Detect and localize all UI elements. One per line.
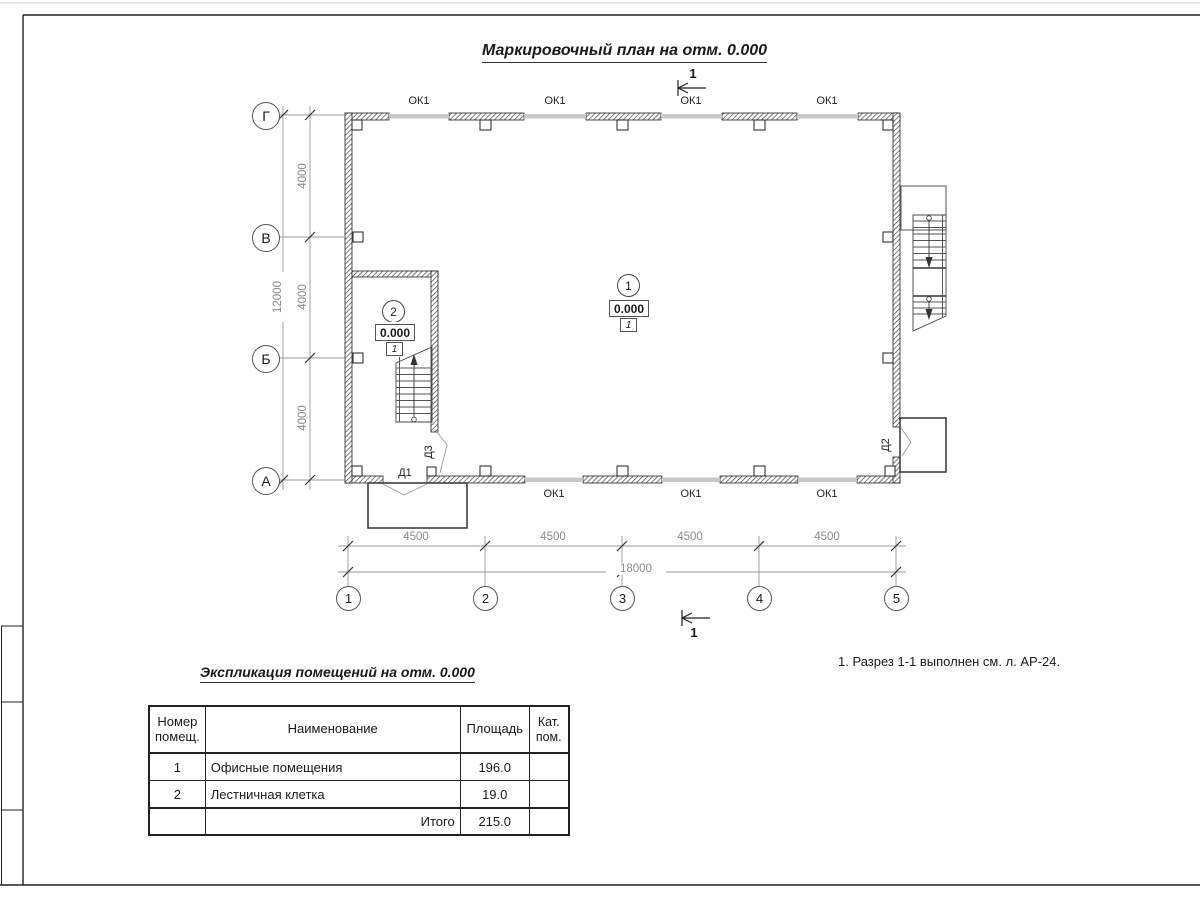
window-label: ОК1: [807, 488, 847, 500]
cell-empty: [149, 808, 205, 835]
dimension-text: 4500: [523, 531, 583, 543]
dimension-text-total: 12000: [272, 272, 284, 322]
door-label-d3: Д3: [423, 432, 435, 472]
table-row: 2 Лестничная клетка 19.0: [149, 781, 569, 809]
external-stair: [901, 186, 946, 331]
window-label: ОК1: [671, 95, 711, 107]
room-number-badge: 2: [382, 300, 405, 323]
axis-bubble-row: Б: [252, 345, 280, 373]
cell-number: 1: [149, 753, 205, 781]
cell-area: 196.0: [460, 753, 529, 781]
header-cat: Кат. пом.: [529, 706, 569, 753]
window-label: ОК1: [807, 95, 847, 107]
total-label: Итого: [205, 808, 460, 835]
header-name: Наименование: [205, 706, 460, 753]
room-elevation: 0.000: [375, 324, 415, 341]
drawing-sheet: Маркировочный план на отм. 0.000 Эксплик…: [0, 0, 1200, 900]
explication-title: Экспликация помещений на отм. 0.000: [200, 664, 475, 683]
header-number: Номер помещ.: [149, 706, 205, 753]
porches: [368, 418, 946, 528]
room-number-badge: 1: [617, 274, 640, 297]
cell-name: Офисные помещения: [205, 753, 460, 781]
section-number-top: 1: [683, 66, 703, 81]
axis-bubble-col: 3: [610, 586, 635, 611]
axis-bubble-col: 4: [747, 586, 772, 611]
axis-bubble-row: Г: [252, 102, 280, 130]
window-label: ОК1: [399, 95, 439, 107]
dimension-text-total: 18000: [606, 563, 666, 575]
axis-bubble-col: 2: [473, 586, 498, 611]
axis-bubble-col: 1: [336, 586, 361, 611]
cell-number: 2: [149, 781, 205, 809]
dimension-lines: [278, 106, 906, 587]
cell-area: 19.0: [460, 781, 529, 809]
door-leaves: [383, 428, 911, 495]
plan-title: Маркировочный план на отм. 0.000: [482, 42, 767, 63]
door-label-d2: Д2: [880, 425, 892, 465]
header-area: Площадь: [460, 706, 529, 753]
explication-table: Номер помещ. Наименование Площадь Кат. п…: [148, 705, 570, 836]
table-total-row: Итого 215.0: [149, 808, 569, 835]
stairwell-stair: [396, 347, 432, 422]
cell-name: Лестничная клетка: [205, 781, 460, 809]
window-label: ОК1: [535, 95, 575, 107]
dimension-text: 4000: [297, 156, 309, 196]
dimension-text: 4000: [297, 277, 309, 317]
axis-bubble-row: В: [252, 224, 280, 252]
room-elevation: 0.000: [609, 300, 649, 317]
cell-cat: [529, 753, 569, 781]
dimension-text: 4500: [660, 531, 720, 543]
floor-type-badge: 1: [620, 318, 637, 332]
dimension-text: 4500: [797, 531, 857, 543]
table-header-row: Номер помещ. Наименование Площадь Кат. п…: [149, 706, 569, 753]
cell-empty: [529, 808, 569, 835]
section-marks: [678, 80, 710, 626]
section-note: 1. Разрез 1-1 выполнен см. л. АР-24.: [838, 654, 1060, 669]
cell-cat: [529, 781, 569, 809]
exterior-walls: [345, 113, 900, 483]
dimension-text: 4500: [386, 531, 446, 543]
door-label-d1: Д1: [385, 467, 425, 479]
axis-bubble-row: А: [252, 467, 280, 495]
axis-bubble-col: 5: [884, 586, 909, 611]
section-number-bottom: 1: [684, 625, 704, 640]
floor-type-badge: 1: [386, 342, 403, 356]
window-label: ОК1: [534, 488, 574, 500]
window-label: ОК1: [671, 488, 711, 500]
table-row: 1 Офисные помещения 196.0: [149, 753, 569, 781]
dimension-text: 4000: [297, 398, 309, 438]
window-openings: [389, 114, 858, 482]
total-area: 215.0: [460, 808, 529, 835]
